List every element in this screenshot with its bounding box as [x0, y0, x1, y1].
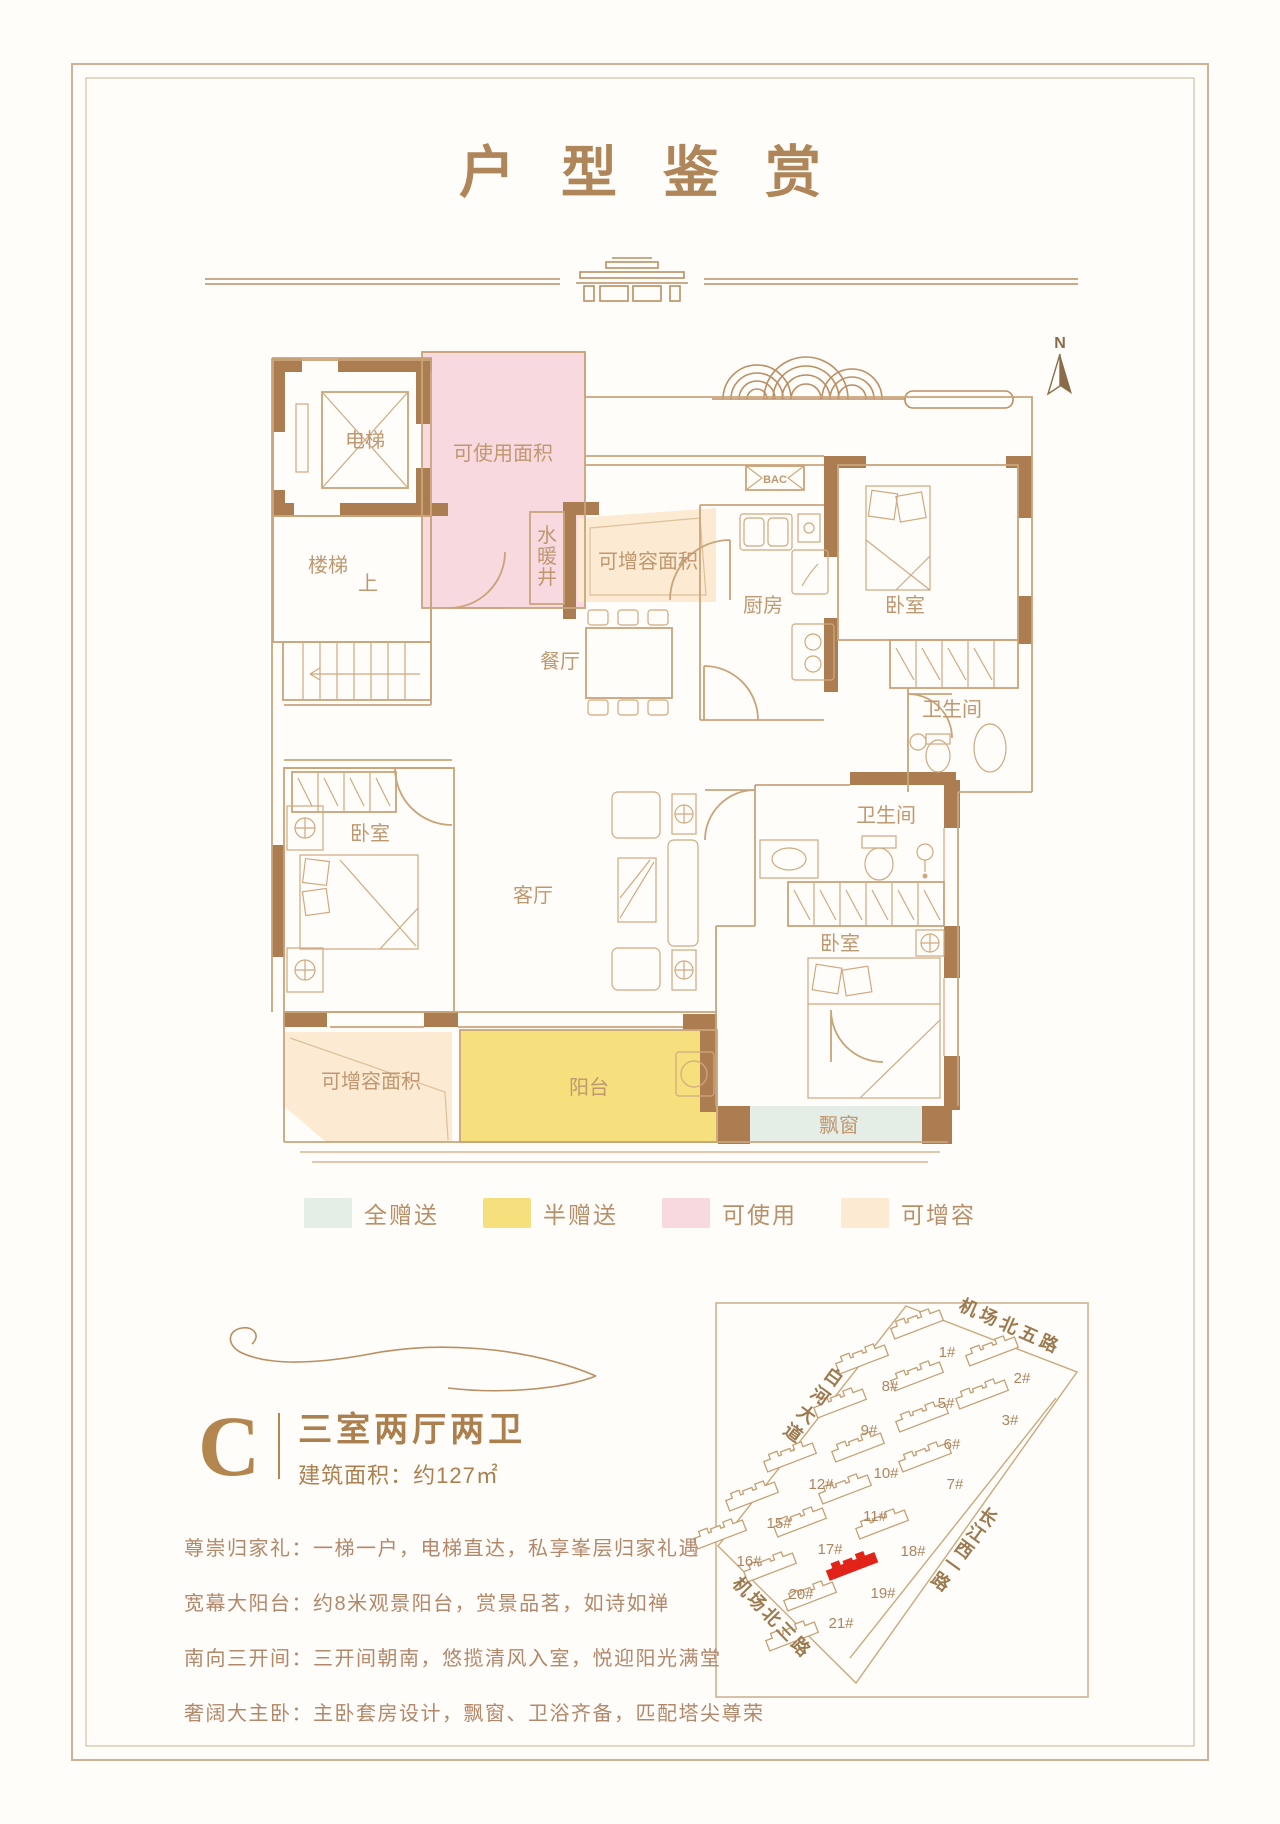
legend-label: 全赠送: [364, 1196, 439, 1230]
building-label: 6#: [944, 1436, 961, 1453]
building-label: 15#: [766, 1515, 792, 1532]
stairs-up-label: 上: [358, 572, 378, 595]
room-label-elevator: 电梯: [345, 429, 385, 452]
unit-info: C 三室两厅两卫 建筑面积：约127㎡: [198, 1402, 526, 1490]
legend-swatch-expandable: [841, 1198, 889, 1228]
legend-swatch-full-gift: [304, 1198, 352, 1228]
building-label: 9#: [861, 1422, 878, 1439]
inner-frame: [86, 78, 1194, 1746]
outer-frame: [72, 64, 1208, 1760]
legend-item-expandable: 可增容: [841, 1196, 976, 1230]
north-arrow-icon: N: [1048, 335, 1072, 394]
unit-layout: 三室两厅两卫: [298, 1402, 526, 1451]
shaft-char-1: 水: [537, 524, 557, 547]
unit-area: 建筑面积：约127㎡: [298, 1458, 526, 1490]
feature-line: 南向三开间：三开间朝南，悠揽清风入室，悦迎阳光满堂: [184, 1642, 764, 1671]
legend-item-full-gift: 全赠送: [304, 1196, 439, 1230]
legend-label: 可增容: [901, 1196, 976, 1230]
building-label: 5#: [938, 1395, 955, 1412]
page-title: 户型鉴赏: [0, 128, 1280, 209]
building-label: 10#: [873, 1465, 899, 1482]
building-label: 17#: [817, 1541, 843, 1558]
building-label: 12#: [808, 1476, 834, 1493]
feature-line: 奢阔大主卧：主卧套房设计，飘窗、卫浴齐备，匹配塔尖尊荣: [184, 1697, 764, 1726]
cloud-line-icon: [230, 1328, 596, 1391]
room-label-bedroom-left: 卧室: [350, 822, 390, 845]
legend-item-half-gift: 半赠送: [483, 1196, 618, 1230]
legend-label: 可使用: [722, 1196, 797, 1230]
shaft-char-2: 暖: [537, 545, 557, 568]
north-label: N: [1054, 335, 1066, 352]
room-label-bedroom-tr: 卧室: [885, 594, 925, 617]
room-label-bath-middle: 卫生间: [856, 804, 916, 827]
feature-list: 尊崇归家礼：一梯一户，电梯直达，私享峯层归家礼遇 宽幕大阳台：约8米观景阳台，赏…: [184, 1532, 764, 1752]
building-label: 19#: [870, 1585, 896, 1602]
room-label-bedroom-master: 卧室: [820, 932, 860, 955]
room-label-kitchen: 厨房: [743, 594, 783, 617]
legend-swatch-half-gift: [483, 1198, 531, 1228]
feature-line: 宽幕大阳台：约8米观景阳台，赏景品茗，如诗如禅: [184, 1587, 764, 1616]
room-label-bath-tr: 卫生间: [922, 698, 982, 721]
cloud-icon: [712, 357, 1013, 408]
vent-label: BAC: [763, 474, 787, 486]
room-label-usable: 可使用面积: [453, 442, 553, 465]
legend-label: 半赠送: [543, 1196, 618, 1230]
building-label: 18#: [900, 1543, 926, 1560]
unit-letter: C: [198, 1411, 260, 1481]
room-label-living: 客厅: [513, 884, 553, 907]
legend-item-usable: 可使用: [662, 1196, 797, 1230]
legend-swatch-usable: [662, 1198, 710, 1228]
room-label-stairs: 楼梯: [308, 554, 348, 577]
title-divider: [205, 258, 1078, 301]
building-label: 8#: [882, 1378, 899, 1395]
feature-line: 尊崇归家礼：一梯一户，电梯直达，私享峯层归家礼遇: [184, 1532, 764, 1561]
building-label: 21#: [828, 1615, 854, 1632]
room-label-dining: 餐厅: [540, 650, 580, 673]
room-label-expand-bottom: 可增容面积: [321, 1070, 421, 1093]
building-label: 3#: [1002, 1412, 1019, 1429]
building-label: 11#: [863, 1508, 888, 1525]
room-label-balcony: 阳台: [569, 1076, 609, 1099]
poster-page: N: [0, 0, 1280, 1824]
building-label: 7#: [947, 1476, 964, 1493]
gate-icon: [576, 258, 688, 301]
building-label: 2#: [1014, 1370, 1031, 1387]
building-label: 1#: [939, 1344, 956, 1361]
shaft-char-3: 井: [537, 566, 557, 589]
building-label: 20#: [788, 1586, 814, 1603]
unit-divider-line: [278, 1413, 280, 1479]
legend: 全赠送 半赠送 可使用 可增容: [0, 1196, 1280, 1230]
zone-usable: [422, 352, 585, 608]
room-label-expand-top: 可增容面积: [598, 550, 698, 573]
floor-plan: 电梯 楼梯 上 可使用面积 水 暖 井 可增容面积 BAC 厨房 卧室 卫生间 …: [272, 352, 1032, 1162]
room-label-bay-window: 飘窗: [819, 1114, 859, 1137]
